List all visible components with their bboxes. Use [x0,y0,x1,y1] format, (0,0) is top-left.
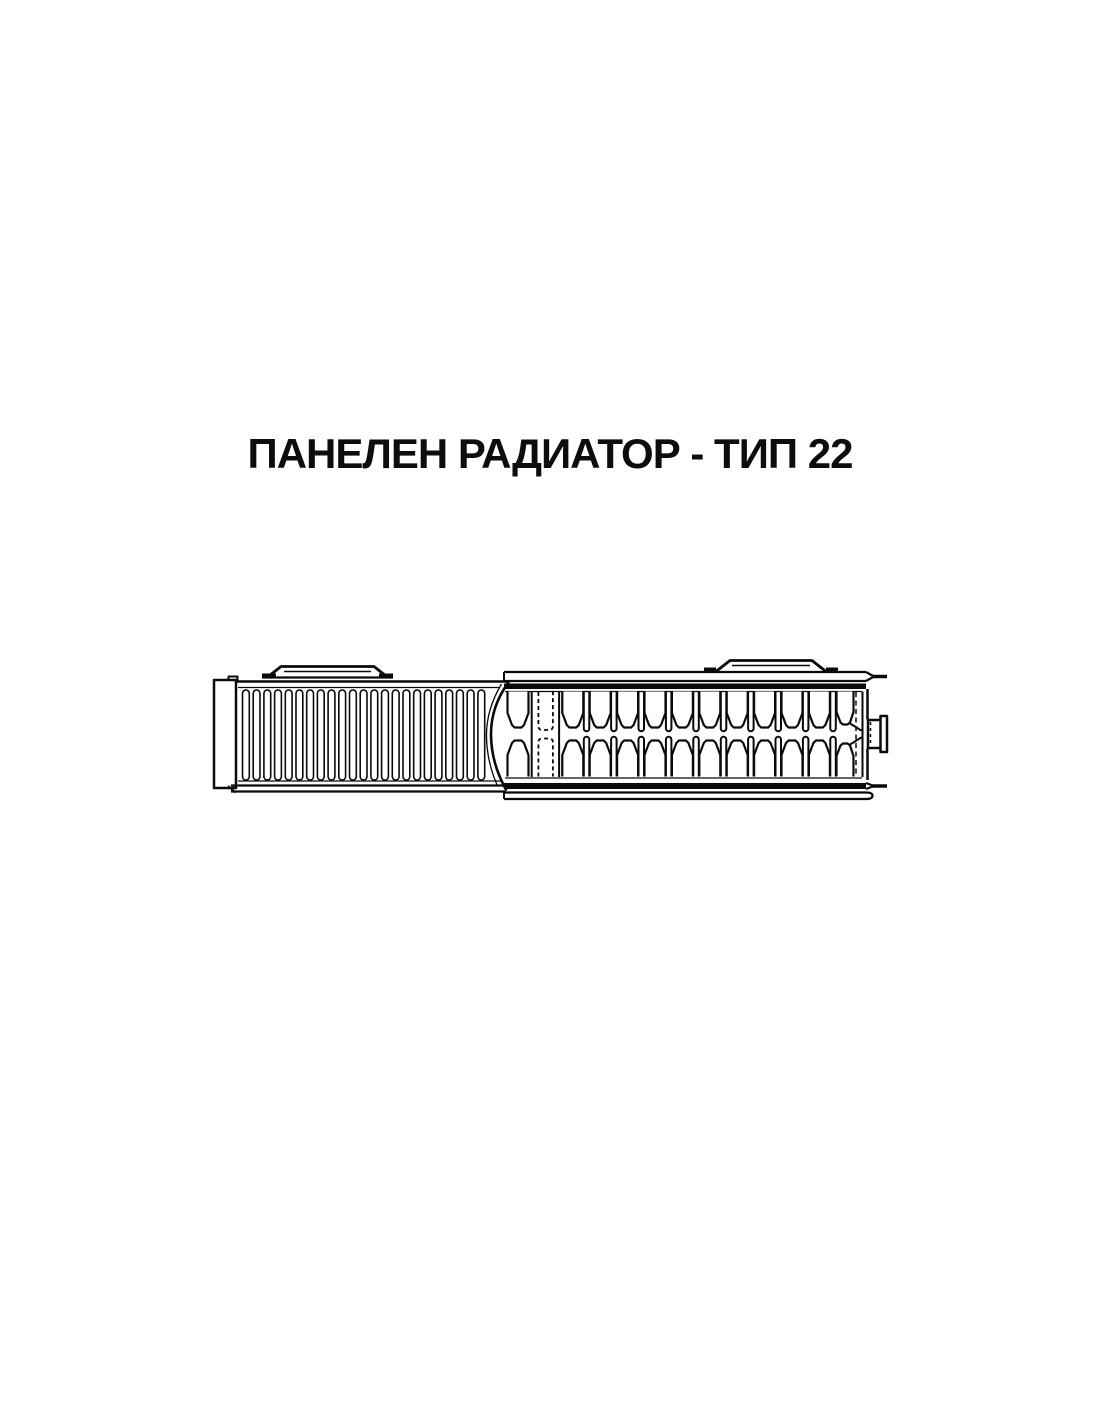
diagram-strokes [214,661,887,800]
rear-panel-bottom-edge [504,778,887,799]
left-bracket [262,667,393,678]
connection-stub-flange [881,716,888,752]
right-bracket [704,661,838,672]
left-end-cap [214,680,236,788]
grille-slots [243,690,485,780]
right-end-detail [837,689,888,780]
radiator-diagram [0,0,1100,1422]
convector-fins [508,692,836,778]
page: ПАНЕЛЕН РАДИАТОР - ТИП 22 [0,0,1100,1422]
rear-panel-top-edge [504,672,887,692]
